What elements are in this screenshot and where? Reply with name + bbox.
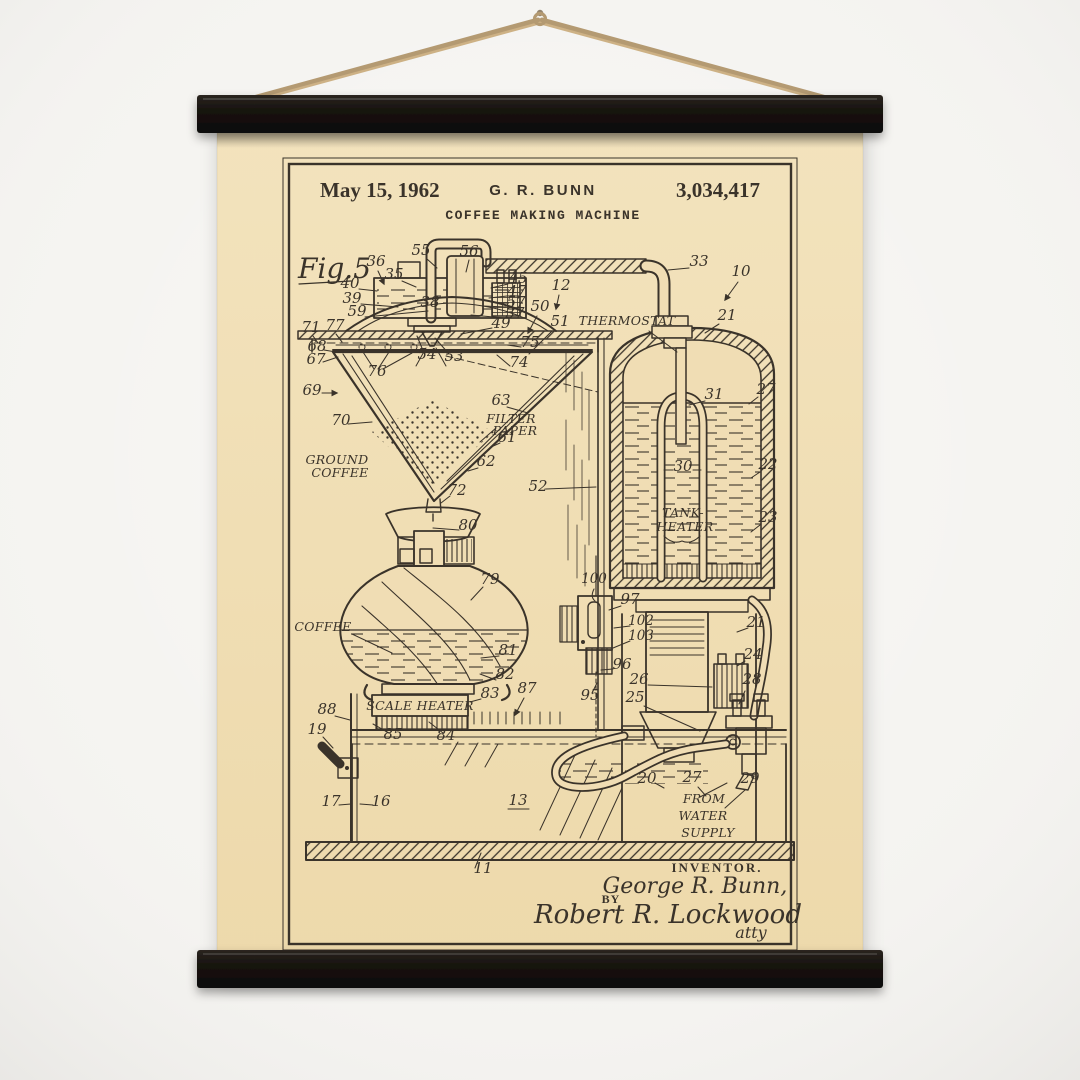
figure-label-group: Fig.5 — [297, 252, 371, 285]
label-water-3: SUPPLY — [681, 825, 736, 840]
ref-13: 13 — [508, 791, 527, 809]
ref-79: 79 — [480, 570, 500, 588]
ref-75: 75 — [520, 333, 539, 351]
ref-21-lower: 21 — [745, 613, 765, 631]
label-tank-heater-1: TANK- — [662, 505, 704, 520]
label-ground-2: COFFEE — [311, 465, 368, 480]
ref-10: 10 — [731, 262, 751, 280]
ref-84: 84 — [436, 726, 455, 744]
tank-water — [623, 402, 761, 564]
ref-26: 26 — [628, 670, 649, 688]
ref-95: 95 — [580, 686, 599, 704]
ref-103: 103 — [628, 628, 654, 644]
label-tank-heater-2: HEATER — [655, 519, 713, 534]
bottom-hanger-bar — [197, 950, 883, 988]
ref-12: 12 — [551, 276, 570, 294]
patent-number: 3,034,417 — [676, 178, 760, 202]
patent-date: May 15, 1962 — [320, 178, 440, 202]
base-plate — [306, 842, 794, 860]
ref-49: 49 — [490, 314, 511, 332]
ref-33: 33 — [689, 252, 708, 270]
ref-85: 85 — [383, 725, 402, 743]
ref-25: 25 — [624, 688, 644, 706]
ref-11: 11 — [473, 859, 492, 877]
ref-20: 20 — [636, 769, 657, 787]
label-filter-2: PAPER — [492, 423, 538, 438]
ref-53: 53 — [444, 347, 463, 365]
ref-72: 72 — [447, 481, 466, 499]
ref-83: 83 — [480, 684, 499, 702]
patent-inventor-header: G. R. BUNN — [489, 182, 597, 199]
cabinet-top-plate — [298, 331, 612, 339]
attorney-initials: atty — [735, 923, 767, 942]
ref-87: 87 — [517, 679, 537, 697]
poster-photo: May 15, 1962 G. R. BUNN 3,034,417 COFFEE… — [0, 0, 1080, 1080]
ref-31: 31 — [704, 385, 723, 403]
ref-28: 28 — [741, 670, 761, 688]
ref-24: 24 — [742, 645, 762, 663]
ref-35: 35 — [384, 265, 403, 283]
label-scale-heater: SCALE HEATER — [366, 698, 473, 713]
ref-22: 22 — [757, 455, 777, 473]
ref-21-dome: 21 — [716, 306, 736, 324]
ref-38: 38 — [420, 293, 439, 311]
water-tank — [610, 316, 774, 588]
ref-56: 56 — [459, 242, 479, 260]
ref-97: 97 — [620, 590, 640, 608]
ref-62: 62 — [476, 452, 495, 470]
ref-50: 50 — [530, 297, 550, 315]
ref-80: 80 — [458, 516, 478, 534]
label-coffee: COFFEE — [294, 619, 351, 634]
ref-23: 23 — [757, 508, 777, 526]
ref-82: 82 — [495, 665, 514, 683]
ref-51: 51 — [550, 312, 569, 330]
bar-shadow-on-paper — [217, 131, 863, 148]
poster-scene: May 15, 1962 G. R. BUNN 3,034,417 COFFEE… — [0, 0, 1080, 1080]
ref-52: 52 — [528, 477, 547, 495]
ref-29: 29 — [739, 769, 760, 787]
ref-16: 16 — [371, 792, 391, 810]
thermostat-rod — [676, 348, 686, 444]
label-thermostat: THERMOSTAT — [579, 313, 677, 328]
ref-30: 30 — [673, 457, 693, 475]
ref-59: 59 — [347, 302, 367, 320]
ref-88: 88 — [317, 700, 336, 718]
ref-71: 71 — [301, 318, 320, 336]
ref-19: 19 — [307, 720, 327, 738]
inventor-signature: George R. Bunn, — [603, 874, 788, 899]
figure-label: Fig.5 — [297, 252, 371, 285]
ref-76: 76 — [367, 362, 387, 380]
ref-70: 70 — [331, 411, 351, 429]
ref-74: 74 — [509, 353, 528, 371]
label-water-1: FROM — [682, 791, 726, 806]
ref-55: 55 — [411, 241, 430, 259]
ref-102: 102 — [628, 613, 654, 629]
ref-100: 100 — [581, 571, 607, 587]
top-hanger-bar — [197, 95, 883, 133]
ref-17: 17 — [321, 792, 341, 810]
ref-63: 63 — [491, 391, 510, 409]
ref-69: 69 — [302, 381, 322, 399]
ref-54: 54 — [417, 345, 436, 363]
ref-81: 81 — [498, 641, 517, 659]
ref-36: 36 — [366, 252, 386, 270]
ref-77: 77 — [325, 316, 345, 334]
ref-27: 27 — [755, 380, 776, 398]
patent-title: COFFEE MAKING MACHINE — [445, 208, 640, 223]
label-water-2: WATER — [679, 808, 728, 823]
ref-27-lower: 27 — [681, 768, 702, 786]
inventor-caption: INVENTOR. — [671, 860, 762, 875]
ref-67: 67 — [306, 350, 326, 368]
